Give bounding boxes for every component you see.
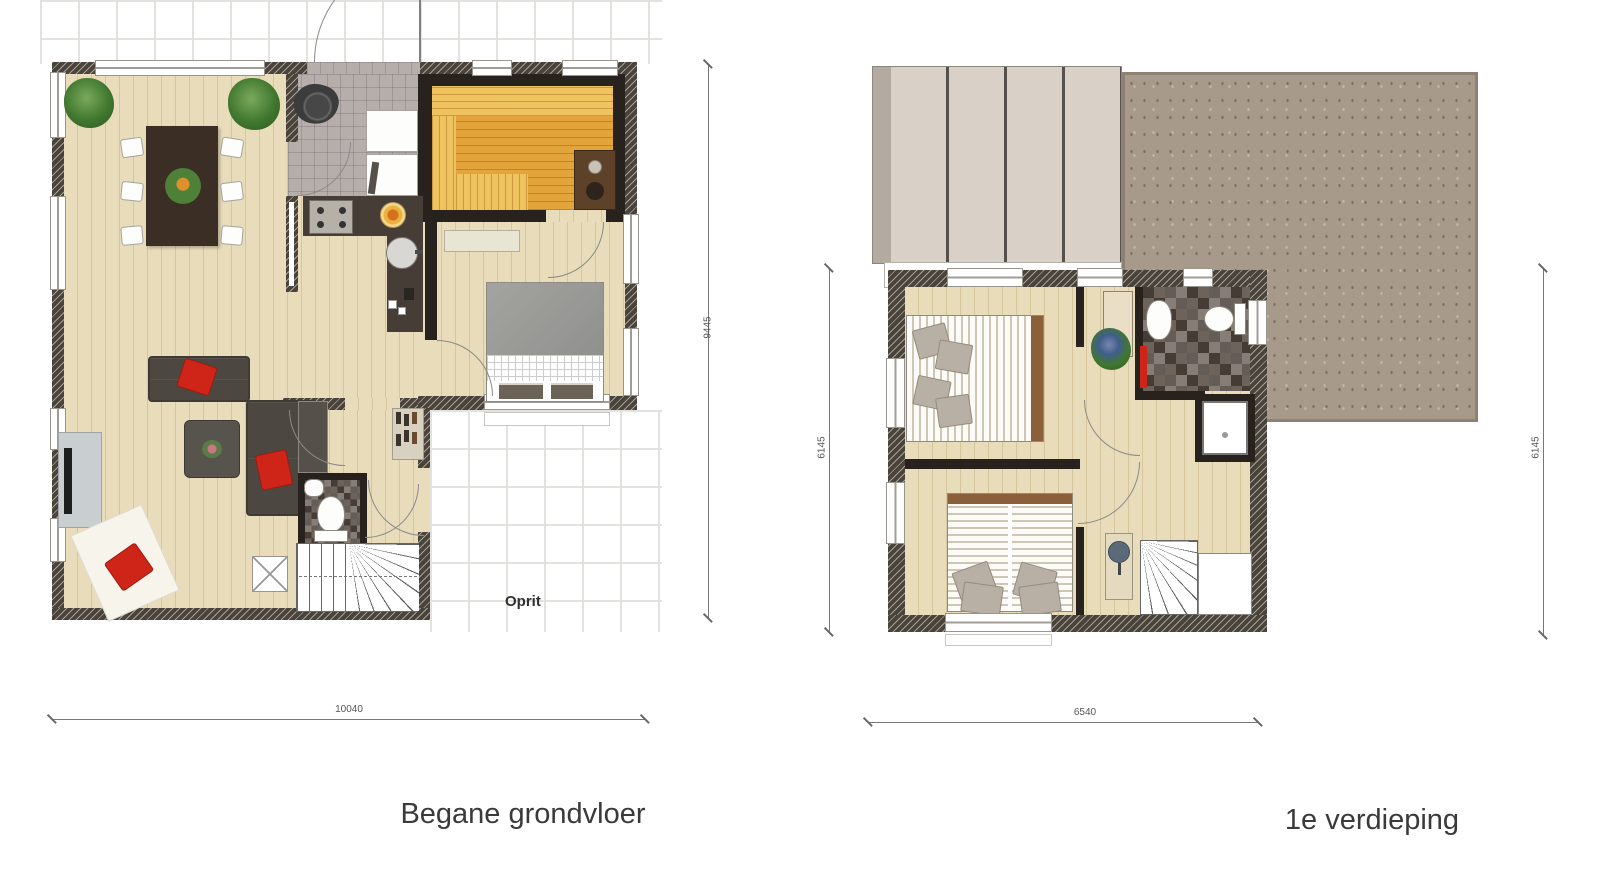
pillow-icon: [935, 394, 973, 428]
front-door-gap: [307, 62, 420, 74]
front-door-leaf: [419, 0, 421, 62]
table-plant-icon: [165, 168, 201, 204]
window-sill: [945, 634, 1052, 646]
dining-chair: [220, 181, 244, 203]
towel-stack-icon: [551, 383, 593, 399]
red-towel-icon: [1140, 346, 1147, 388]
pillow-icon: [935, 339, 974, 374]
dining-chair: [220, 136, 245, 158]
bed-duvet: [487, 283, 603, 355]
pillow-icon: [960, 581, 1004, 616]
stove-burner-icon: [317, 207, 324, 214]
sauna-bench-left: [432, 116, 456, 210]
dimension-label: 10040: [319, 704, 379, 715]
toilet-icon: [1204, 306, 1234, 332]
wall-stub: [1076, 527, 1084, 615]
side-stool: [252, 556, 288, 592]
wall-bedroom-left: [425, 222, 437, 340]
dining-chair: [220, 225, 244, 246]
desk-lamp-icon: [1108, 541, 1130, 563]
corner-plant-icon: [64, 78, 114, 128]
sauna-door-gap: [546, 210, 606, 222]
wall-stub: [1076, 287, 1084, 347]
toilet-tank-icon: [1234, 303, 1246, 335]
table-flowers-icon: [202, 440, 222, 458]
ground-floor-title: Begane grondvloer: [328, 798, 718, 831]
bed-headboard: [948, 494, 1072, 504]
driveway-tiles: [430, 410, 662, 632]
stove-icon: [309, 200, 353, 234]
first-floor-title: 1e verdieping: [1232, 804, 1512, 837]
staircase: [1140, 540, 1198, 615]
toilet-tank-icon: [314, 530, 348, 542]
kitchen-item: [398, 307, 406, 315]
desk-lamp-stem-icon: [1118, 563, 1121, 575]
sink-icon: [386, 237, 418, 269]
window: [1183, 268, 1213, 287]
tv-icon: [64, 448, 72, 514]
shower-tray: [1202, 401, 1248, 455]
door-gap-bedroom: [425, 340, 437, 396]
kitchen-item: [388, 300, 397, 309]
towel-stack-icon: [499, 383, 543, 399]
shower-drain-icon: [1222, 432, 1228, 438]
terrace-step: [484, 412, 610, 426]
stair-walkline: [299, 576, 417, 577]
dining-chair: [120, 181, 144, 202]
window: [1077, 268, 1123, 287]
sloped-roof-panels: [872, 66, 1122, 264]
staircase: [296, 543, 418, 612]
roof-panel-lines: [891, 67, 1121, 263]
bed-blanket: [487, 355, 603, 381]
dimension-line: [1543, 268, 1544, 635]
window: [562, 60, 618, 76]
fridge-icon: [366, 110, 418, 152]
dimension-label: 6145: [817, 422, 828, 474]
window: [95, 60, 265, 76]
window: [886, 358, 905, 428]
fruit-bowl-icon: [380, 202, 406, 228]
bed-headboard: [1031, 316, 1043, 441]
corner-plant-icon: [228, 78, 280, 130]
shoes-icon: [396, 412, 401, 424]
wall-bedroom-divider: [905, 459, 1080, 469]
window: [945, 613, 1052, 632]
dimension-label: 9445: [703, 302, 714, 354]
sauna-stove: [574, 150, 616, 210]
kitchen-item: [404, 288, 414, 300]
bed-double: [486, 282, 604, 402]
bed-double: [906, 315, 1044, 442]
faucet-icon: [415, 250, 423, 254]
wall-left: [888, 270, 905, 632]
plant-icon: [1091, 328, 1131, 370]
stair-winders: [349, 544, 419, 611]
dimension-label: 6145: [1531, 422, 1542, 474]
sauna-bench-top: [432, 86, 613, 116]
dimension-line: [868, 722, 1258, 723]
window: [50, 196, 66, 290]
stair-treads: [297, 544, 349, 611]
window: [886, 482, 905, 544]
sauna-stove-knob-icon: [588, 160, 602, 174]
window: [623, 328, 639, 396]
window: [1248, 300, 1267, 345]
floorplan-document: Oprit: [0, 0, 1600, 889]
dimension-line: [52, 719, 645, 720]
roof-panel-edge: [873, 67, 891, 263]
oprit-label: Oprit: [505, 593, 541, 610]
bedroom-bench: [444, 230, 520, 252]
window: [623, 214, 639, 284]
bathroom-sink-icon: [1146, 300, 1172, 340]
dimension-label: 6540: [1055, 707, 1115, 718]
bed-twin-pair: [947, 493, 1073, 612]
stair-landing: [1198, 553, 1252, 615]
wall-kitchen-stub-glass: [289, 202, 294, 286]
dining-chair: [120, 225, 144, 246]
sauna-bench-corner: [456, 174, 528, 210]
window: [947, 268, 1023, 287]
sauna-stove-heater-icon: [586, 182, 604, 200]
dining-chair: [120, 137, 144, 159]
window: [472, 60, 512, 76]
pillow-icon: [1018, 581, 1062, 616]
dimension-line: [829, 268, 830, 632]
toilet-icon: [317, 496, 345, 532]
toilet-sink-icon: [304, 479, 324, 497]
